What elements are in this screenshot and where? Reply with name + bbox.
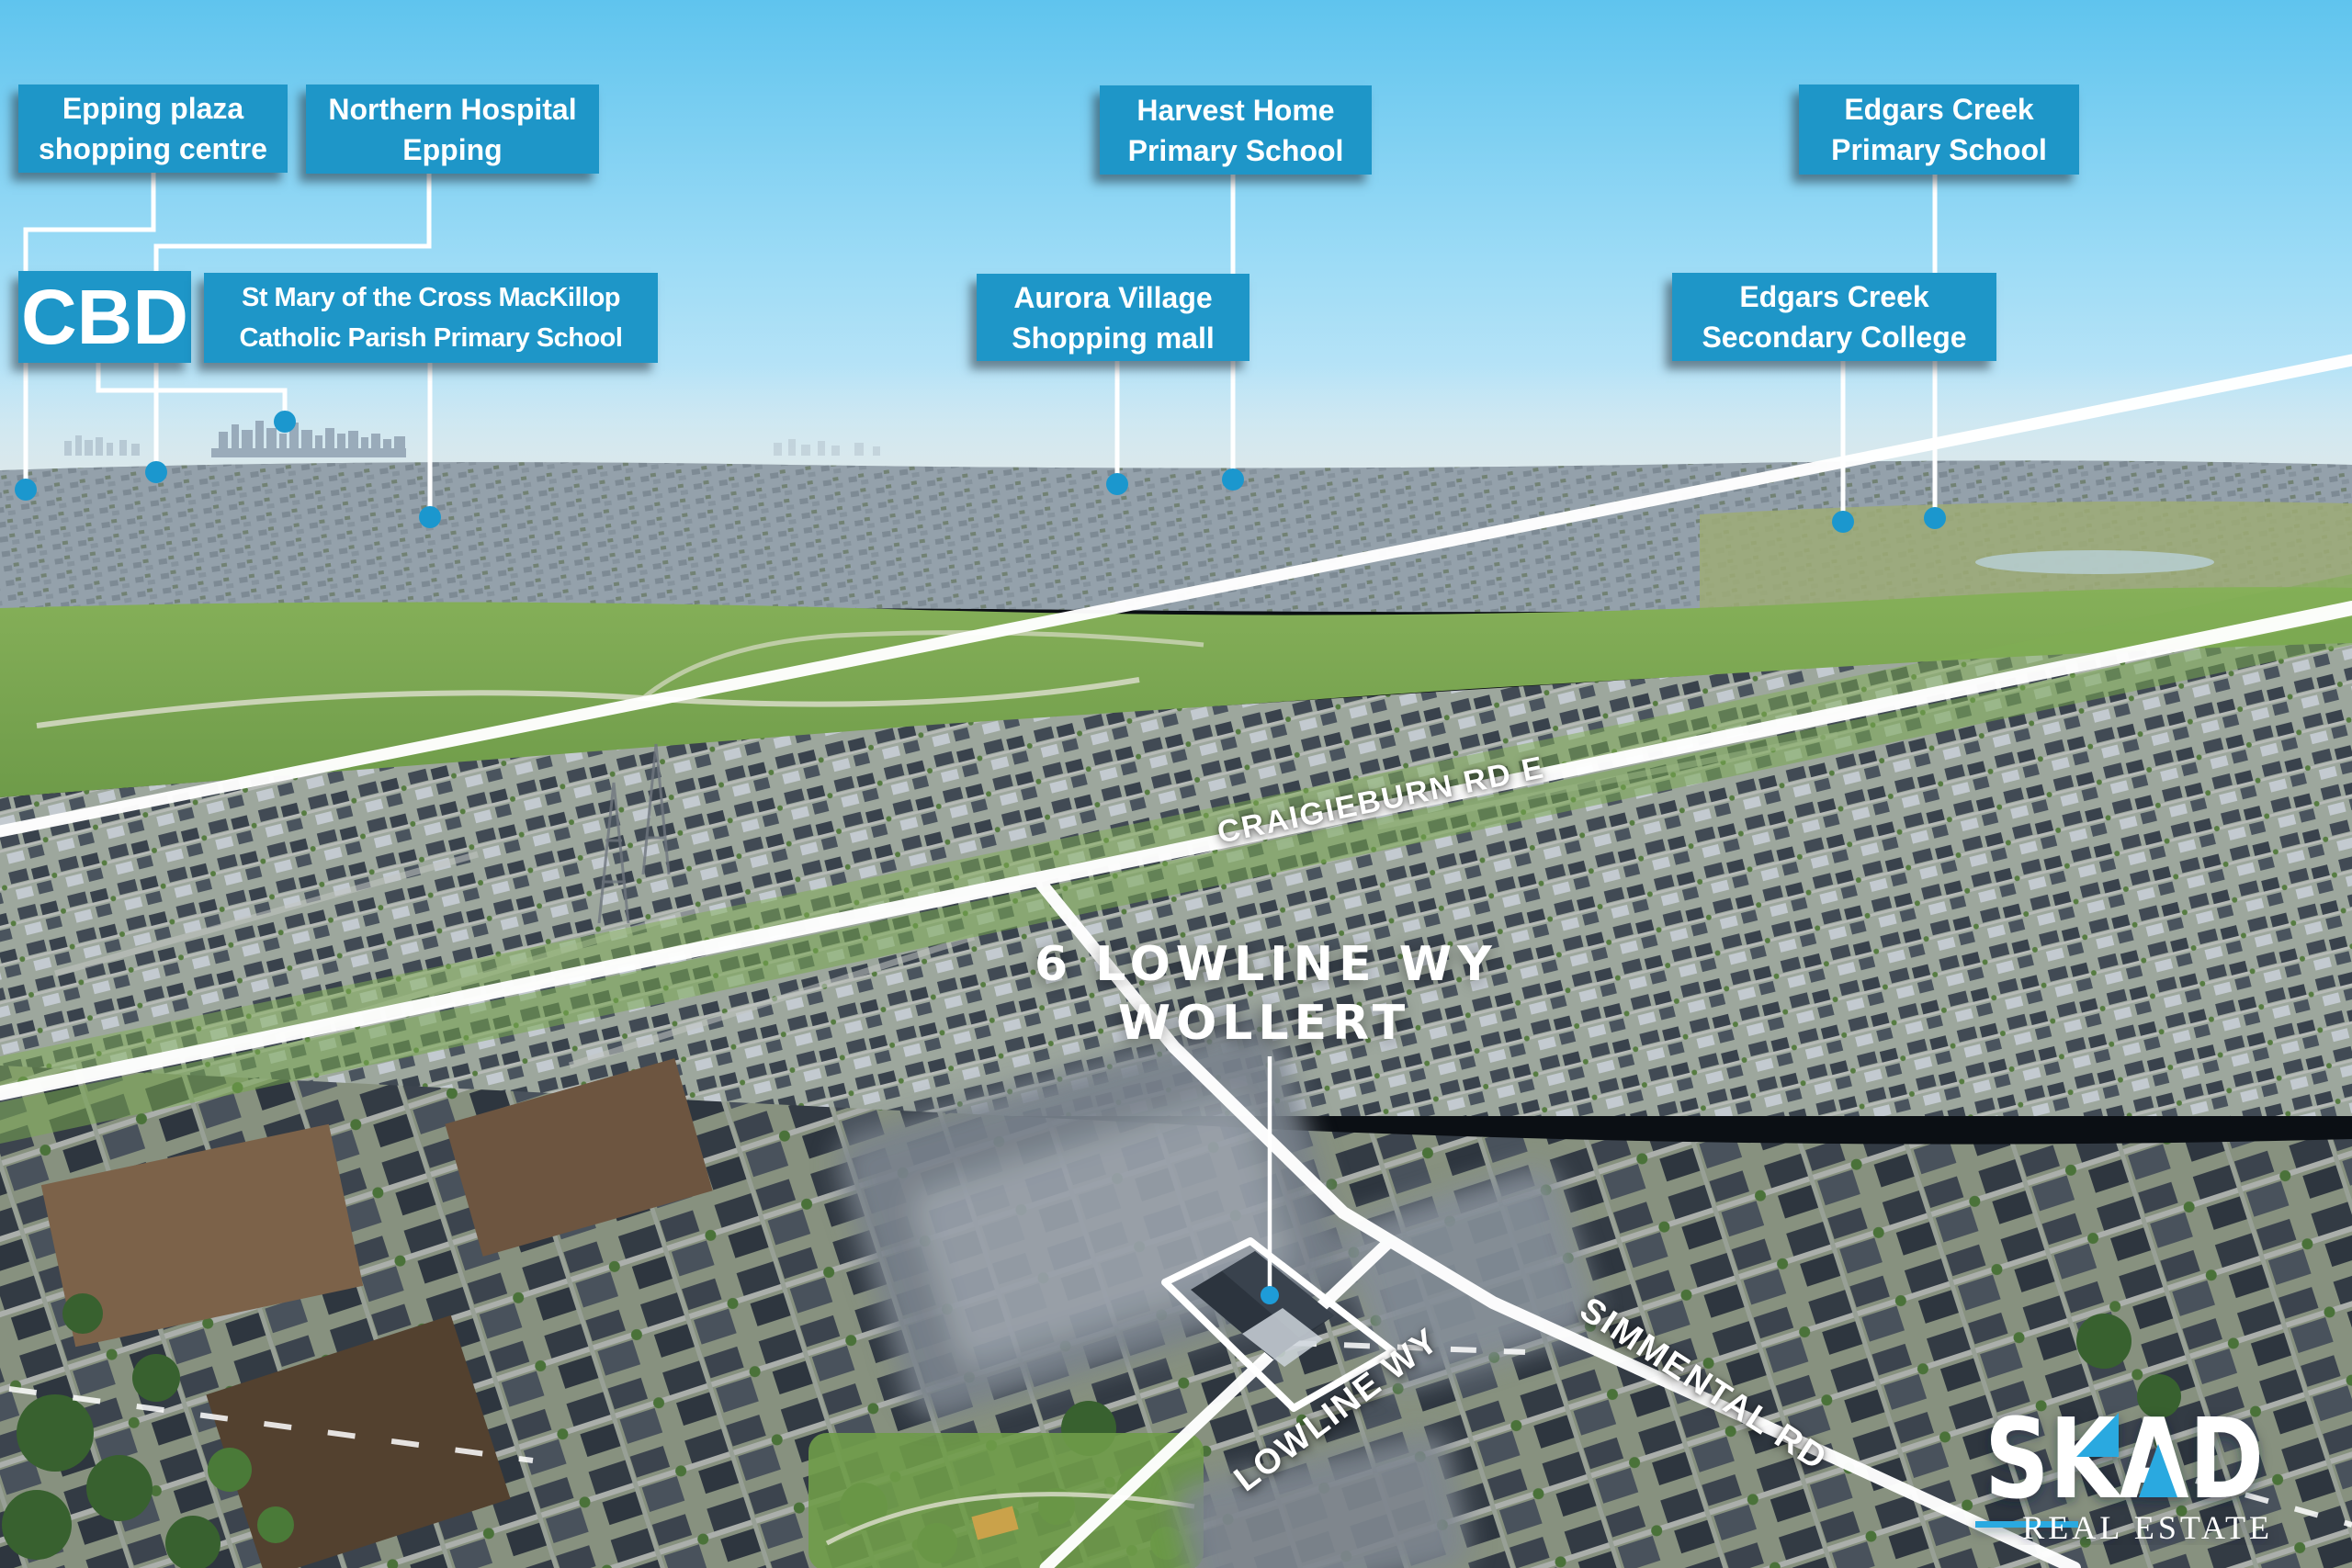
agency-logo: SKAD REAL ESTATE <box>1966 1404 2282 1550</box>
label-text: Epping <box>402 130 502 170</box>
label-aurora-village: Aurora Village Shopping mall <box>977 274 1249 361</box>
label-text: Catholic Parish Primary School <box>240 318 623 358</box>
label-northern-hospital: Northern Hospital Epping <box>306 85 599 174</box>
property-address-title: 6 LOWLINE WY WOLLERT <box>1035 935 1494 1053</box>
label-text: CBD <box>21 276 188 358</box>
label-text: Harvest Home <box>1136 90 1334 130</box>
real-estate-aerial-map: Epping plaza shopping centre Northern Ho… <box>0 0 2352 1568</box>
label-text: St Mary of the Cross MacKillop <box>242 277 620 318</box>
label-epping-plaza: Epping plaza shopping centre <box>18 85 288 173</box>
label-text: Primary School <box>1128 130 1344 171</box>
label-text: Edgars Creek <box>1844 89 2033 130</box>
label-harvest-home: Harvest Home Primary School <box>1100 85 1372 175</box>
label-text: Secondary College <box>1702 317 1966 357</box>
label-st-mary: St Mary of the Cross MacKillop Catholic … <box>204 273 658 363</box>
label-text: Northern Hospital <box>328 89 576 130</box>
label-text: shopping centre <box>39 129 267 169</box>
label-edgars-secondary: Edgars Creek Secondary College <box>1672 273 1996 361</box>
label-text: Primary School <box>1831 130 2047 170</box>
property-address-line1: 6 LOWLINE WY <box>1035 935 1494 994</box>
logo-tagline-text: REAL ESTATE <box>2022 1509 2273 1545</box>
property-address-line2: WOLLERT <box>1035 994 1494 1053</box>
aerial-photo-background <box>0 0 2352 1568</box>
label-text: Edgars Creek <box>1739 276 1928 317</box>
label-text: Shopping mall <box>1012 318 1214 358</box>
label-cbd: CBD <box>18 271 191 363</box>
water-strip <box>1975 550 2214 574</box>
label-edgars-primary: Edgars Creek Primary School <box>1799 85 2079 175</box>
logo-brand-text: SKAD <box>1984 1404 2264 1524</box>
label-text: Epping plaza <box>62 88 243 129</box>
label-text: Aurora Village <box>1013 277 1212 318</box>
